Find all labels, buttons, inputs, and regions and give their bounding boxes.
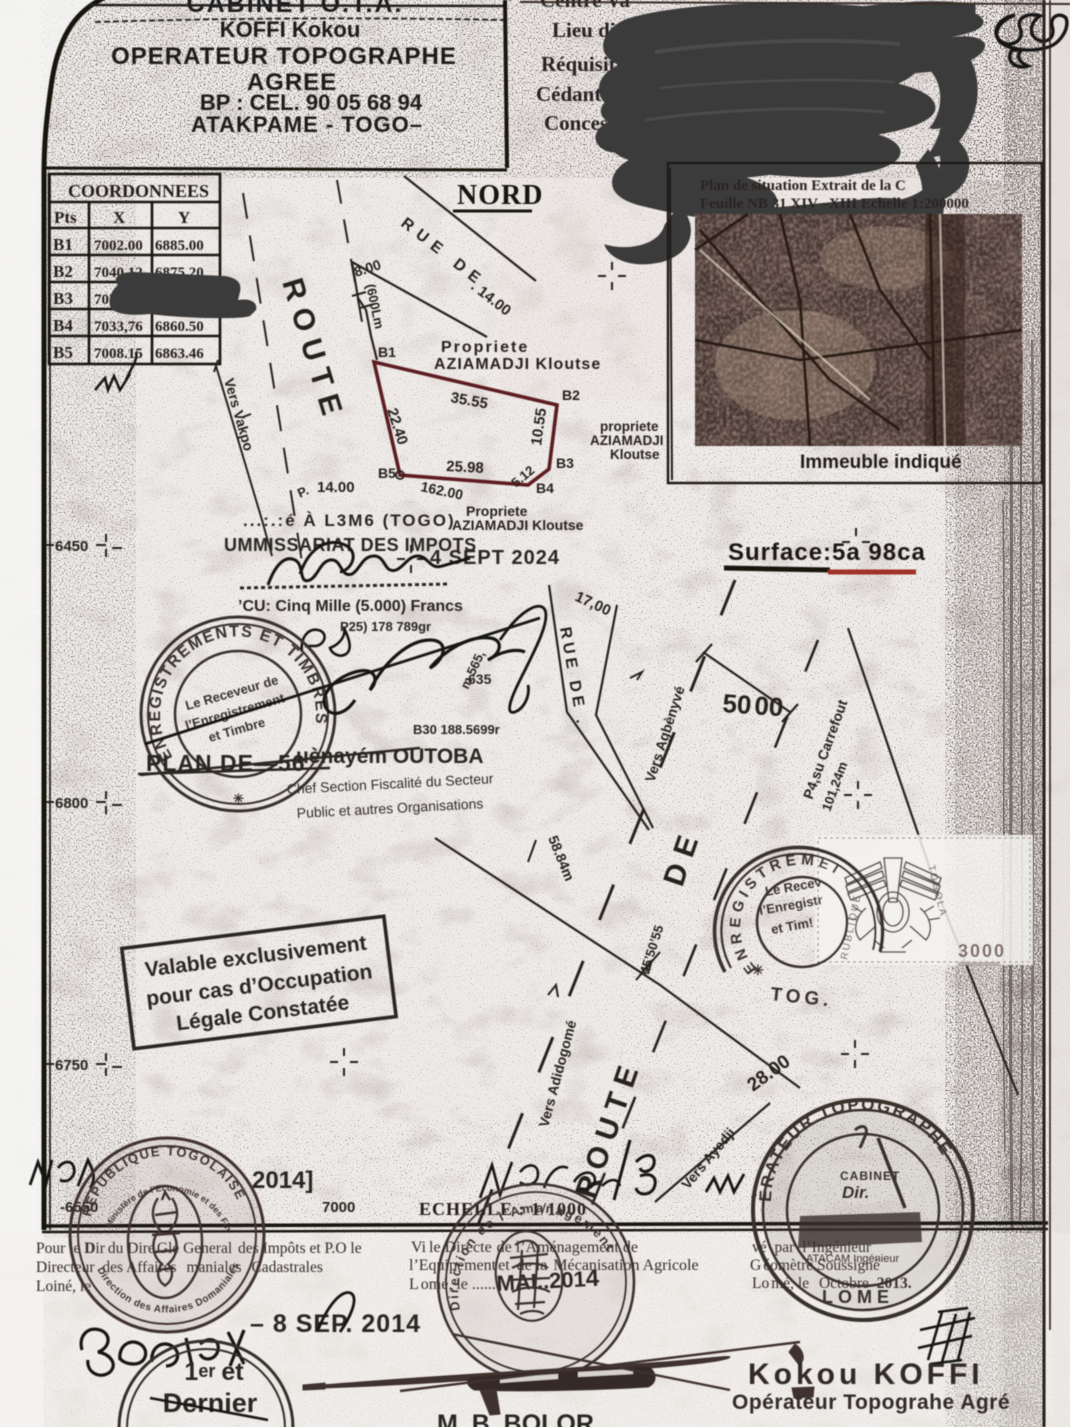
svg-text:– 8 SEP. 2014: – 8 SEP. 2014 [250,1310,421,1338]
svg-text:...:.:é À L3M6 (TOGO): ...:.:é À L3M6 (TOGO) [243,511,456,530]
svg-text:Y: Y [178,208,190,227]
svg-text:✳: ✳ [752,962,764,978]
svg-text:3000: 3000 [958,941,1006,961]
svg-text:2014]: 2014] [252,1167,313,1194]
svg-text:25.98: 25.98 [446,458,484,477]
svg-text:B5: B5 [53,343,73,362]
svg-text:Opérateur Topograhe Agré: Opérateur Topograhe Agré [732,1391,1010,1414]
svg-text:B4: B4 [536,480,554,496]
svg-text:Dir.: Dir. [842,1183,869,1202]
svg-text:6885.00: 6885.00 [155,238,204,254]
svg-text:B2: B2 [562,387,580,403]
svg-text:Kokou KOFFI: Kokou KOFFI [748,1358,984,1391]
svg-text:B4: B4 [53,316,73,335]
svg-text:X: X [113,208,126,227]
svg-text:Immeuble indiqué: Immeuble indiqué [800,452,962,473]
svg-text:ATACAM Ingénieur: ATACAM Ingénieur [806,1253,899,1265]
svg-text:7033,76: 7033,76 [94,319,143,335]
svg-text:propriete: propriete [600,419,659,434]
svg-text:B3: B3 [556,455,574,471]
svg-text:635: 635 [468,671,492,687]
svg-text:7002.00: 7002.00 [94,238,143,254]
svg-text:M. B. BOLOR: M. B. BOLOR [437,1410,594,1427]
svg-text:P25) 178 789gr: P25) 178 789gr [340,619,431,634]
svg-text:6800: 6800 [55,795,88,812]
svg-text:Kloutse: Kloutse [610,447,660,462]
svg-text:AZIAMADJI: AZIAMADJI [590,433,664,448]
svg-text:CABINET O.T.A.: CABINET O.T.A. [187,0,404,18]
svg-text:B5: B5 [378,465,396,481]
svg-text:LOME: LOME [822,1287,894,1307]
svg-text:B30 188.5699r: B30 188.5699r [413,722,500,737]
svg-text:B1: B1 [378,344,396,360]
svg-text:B3: B3 [53,289,73,308]
svg-text:’CU: Cinq Mille (5.000) Francs: ’CU: Cinq Mille (5.000) Francs [238,598,463,615]
svg-text:AZIAMADJI Kloutse: AZIAMADJI Kloutse [434,356,601,373]
svg-text:4 SEPT 2024: 4 SEPT 2024 [430,547,560,569]
svg-text:B1: B1 [53,235,73,254]
svg-text:✳: ✳ [233,791,244,806]
svg-text:B2: B2 [53,262,73,281]
svg-text:Surface:5a 98ca: Surface:5a 98ca [728,539,926,566]
svg-text:AZIAMADJI Kloutse: AZIAMADJI Kloutse [452,517,584,533]
svg-text:Pts: Pts [54,208,77,227]
svg-text:Propriete: Propriete [441,339,529,356]
svg-text:Feuille NB 31 XIV –XIII Echell: Feuille NB 31 XIV –XIII Echelle 1:200000 [700,196,969,212]
svg-text:KOFFI Kokou: KOFFI Kokou [220,17,361,42]
svg-text:ATAKPAME - TOGO–: ATAKPAME - TOGO– [191,112,423,137]
svg-text:Plan de situation Extrait de l: Plan de situation Extrait de la C [700,178,906,194]
svg-text:6863.46: 6863.46 [155,346,204,362]
svg-text:14.00: 14.00 [317,479,355,496]
svg-text:COORDONNEES: COORDONNEES [68,181,209,201]
svg-text:6860.50: 6860.50 [155,319,204,335]
svg-text:NORD: NORD [457,180,543,211]
svg-text:7000: 7000 [322,1199,355,1216]
svg-text:6450: 6450 [55,538,88,555]
svg-text:Cédant: Cédant [536,82,601,106]
svg-text:OPERATEUR TOPOGRAPHE: OPERATEUR TOPOGRAPHE [111,43,457,70]
svg-text:6750: 6750 [55,1057,88,1074]
